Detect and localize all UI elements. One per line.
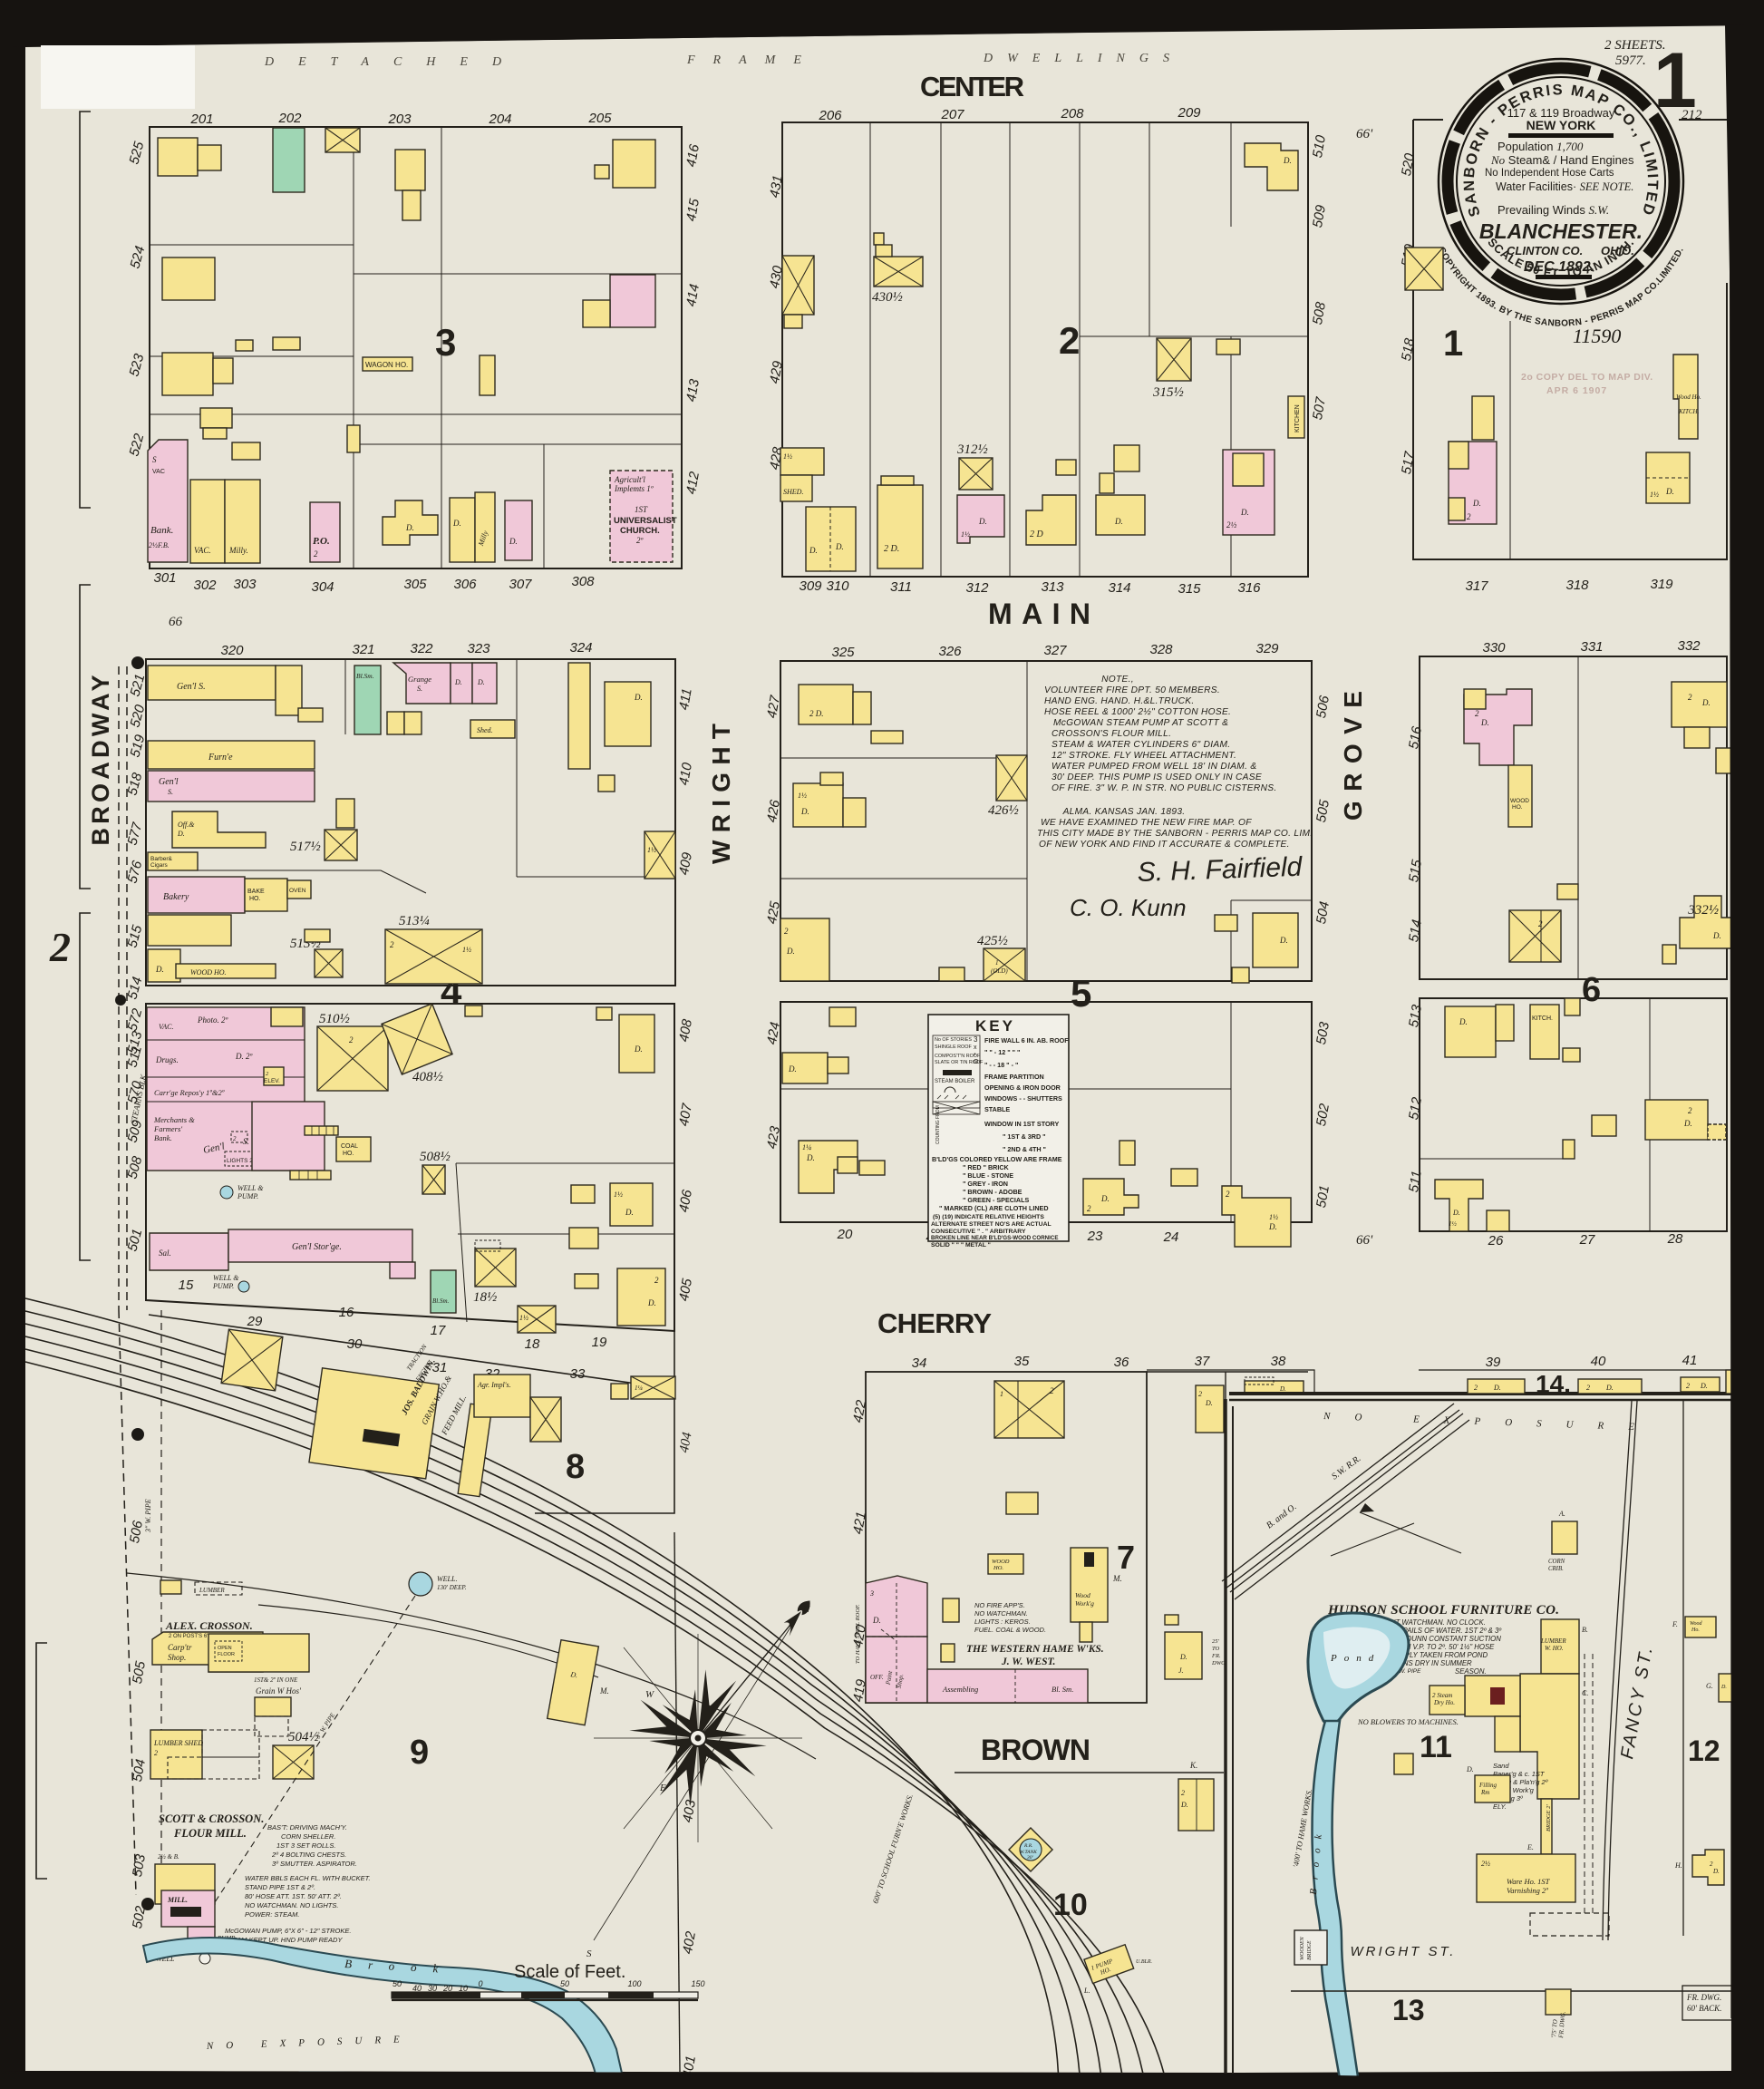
svg-text:NO WATCHMAN. NO LIGHTS.: NO WATCHMAN. NO LIGHTS. (245, 1901, 338, 1909)
svg-text:E: E (659, 1783, 666, 1793)
svg-text:STABLE: STABLE (984, 1105, 1010, 1113)
svg-text:D.: D. (1480, 718, 1489, 727)
svg-text:332: 332 (1677, 638, 1701, 654)
svg-text:2: 2 (1226, 1190, 1230, 1199)
svg-text:P.O.: P.O. (313, 536, 330, 547)
svg-text:80' HOSE ATT. 1ST. 50' ATT. 2º: 80' HOSE ATT. 1ST. 50' ATT. 2º. (245, 1892, 342, 1900)
svg-text:BRIDGE 2': BRIDGE 2' (1546, 1804, 1552, 1832)
svg-text:2: 2 (1087, 1204, 1091, 1213)
svg-text:Dry Ho.: Dry Ho. (1433, 1699, 1455, 1706)
svg-text:Off.&: Off.& (178, 821, 195, 829)
svg-text:311: 311 (890, 579, 912, 595)
svg-text:2: 2 (154, 1749, 158, 1757)
svg-text:D.: D. (155, 965, 164, 974)
svg-text:1: 1 (995, 959, 999, 967)
svg-text:D.: D. (806, 1153, 815, 1162)
svg-text:KEY: KEY (975, 1017, 1015, 1035)
svg-text:426½: 426½ (988, 803, 1019, 818)
svg-text:3: 3 (869, 1589, 874, 1598)
svg-text:308: 308 (571, 574, 595, 589)
svg-text:303: 303 (233, 577, 257, 592)
svg-text:FR. DWG.: FR. DWG. (1686, 1993, 1721, 2002)
svg-text:40: 40 (1591, 1354, 1606, 1369)
svg-text:ALMA. KANSAS JAN. 1893.: ALMA. KANSAS JAN. 1893. (1062, 807, 1186, 817)
svg-text:34: 34 (912, 1355, 927, 1371)
svg-text:1ST& 2º IN ONE: 1ST& 2º IN ONE (254, 1676, 298, 1684)
svg-text:Bl. Sm.: Bl. Sm. (1052, 1685, 1073, 1694)
svg-text:1: 1 (1000, 1390, 1003, 1398)
svg-text:430½: 430½ (872, 290, 903, 305)
svg-text:W. HO.: W. HO. (1545, 1645, 1564, 1652)
svg-text:" RED " BRICK: " RED " BRICK (963, 1163, 1010, 1171)
svg-text:POWER: STEAM.: POWER: STEAM. (245, 1910, 299, 1919)
svg-text:McGOWAN STEAM PUMP AT SCOTT &: McGOWAN STEAM PUMP AT SCOTT & (1053, 718, 1228, 728)
svg-text:x: x (974, 1044, 977, 1051)
svg-text:66': 66' (1356, 1233, 1373, 1248)
svg-text:2½F.B.: 2½F.B. (149, 541, 170, 549)
svg-text:FIRE WALL 6 IN. AB. ROOF: FIRE WALL 6 IN. AB. ROOF (984, 1036, 1069, 1044)
svg-text:S: S (152, 455, 157, 464)
svg-text:2½ & B.: 2½ & B. (158, 1853, 179, 1861)
svg-text:328: 328 (1149, 642, 1173, 657)
svg-text:60' BACK.: 60' BACK. (1687, 2004, 1721, 2013)
svg-text:327: 327 (1043, 643, 1067, 658)
svg-text:6: 6 (1582, 971, 1601, 1009)
svg-text:BROWN: BROWN (981, 1734, 1097, 1766)
svg-text:" GREEN - SPECIALS: " GREEN - SPECIALS (963, 1196, 1030, 1204)
svg-text:201: 201 (189, 112, 213, 127)
svg-text:3º SMUTTER. ASPIRATOR.: 3º SMUTTER. ASPIRATOR. (272, 1860, 357, 1868)
svg-text:2: 2 (314, 549, 318, 559)
svg-text:WE HAVE EXAMINED THE NEW FIRE: WE HAVE EXAMINED THE NEW FIRE MAP. OF (1041, 818, 1252, 828)
svg-text:(5) (19) INDICATE RELATIVE HEI: (5) (19) INDICATE RELATIVE HEIGHTS (933, 1214, 1044, 1220)
svg-text:1½: 1½ (519, 1314, 528, 1322)
svg-text:5977.: 5977. (1615, 53, 1646, 68)
svg-text:17: 17 (431, 1323, 446, 1338)
svg-text:1½: 1½ (1650, 491, 1659, 499)
svg-text:D.: D. (452, 519, 461, 528)
svg-text:326: 326 (938, 644, 962, 659)
svg-text:28: 28 (1667, 1231, 1683, 1247)
svg-text:FRAME: FRAME (686, 53, 819, 67)
svg-text:302: 302 (193, 578, 217, 593)
svg-text:D.: D. (1720, 1685, 1727, 1690)
svg-text:GROVE: GROVE (1339, 685, 1367, 821)
svg-text:Gen'l: Gen'l (159, 777, 179, 787)
svg-text:309: 309 (799, 578, 822, 594)
svg-text:" MARKED (CL) ARE CLOTH LINED: " MARKED (CL) ARE CLOTH LINED (939, 1204, 1049, 1212)
svg-text:COAL: COAL (341, 1143, 358, 1150)
svg-text:TO: TO (1212, 1646, 1219, 1652)
svg-text:CONSECUTIVE " . " ARBITRA: CONSECUTIVE " . " ARBITRARY (931, 1229, 1026, 1235)
svg-text:W: W (645, 1689, 654, 1700)
svg-text:B'LD'GS COLORED YELLOW ARE FRA: B'LD'GS COLORED YELLOW ARE FRAME (932, 1155, 1062, 1163)
svg-text:OF NEW YORK AND FIND IT ACCURA: OF NEW YORK AND FIND IT ACCURATE & COMPL… (1039, 840, 1290, 850)
svg-text:2: 2 (1688, 693, 1692, 702)
svg-text:WINDOW IN 1ST STORY: WINDOW IN 1ST STORY (984, 1120, 1059, 1128)
svg-text:HO.: HO. (343, 1151, 354, 1157)
svg-text:E.: E. (1527, 1843, 1534, 1851)
svg-text:30' DEEP. THIS PUMP IS USED ON: 30' DEEP. THIS PUMP IS USED ONLY IN CASE (1052, 772, 1262, 782)
svg-text:310: 310 (826, 578, 849, 594)
svg-text:M.: M. (599, 1686, 609, 1695)
svg-text:208: 208 (1060, 106, 1084, 121)
svg-text:13: 13 (1392, 1994, 1425, 2026)
svg-text:D.: D. (477, 678, 485, 686)
svg-text:1½: 1½ (783, 452, 792, 461)
svg-text:U.BLR.: U.BLR. (1136, 1959, 1152, 1965)
svg-text:Photo. 2º: Photo. 2º (197, 1015, 228, 1025)
svg-text:314: 314 (1108, 580, 1130, 596)
svg-text:202: 202 (277, 111, 302, 126)
svg-text:11: 11 (1420, 1730, 1452, 1764)
svg-text:LIGHTS : KEROS.: LIGHTS : KEROS. (974, 1618, 1031, 1626)
svg-text:*: * (974, 1053, 976, 1059)
svg-text:Scale of Feet.: Scale of Feet. (514, 1962, 625, 1982)
svg-text:35: 35 (1014, 1354, 1030, 1369)
svg-text:Prevailing Winds S.W.: Prevailing Winds S.W. (1497, 203, 1609, 217)
svg-text:204: 204 (488, 112, 511, 127)
svg-text:1¼: 1¼ (635, 1385, 644, 1392)
svg-text:SHED.: SHED. (783, 488, 803, 496)
svg-text:41: 41 (1682, 1353, 1698, 1368)
svg-text:D.: D. (1712, 1868, 1720, 1875)
svg-text:36: 36 (1114, 1355, 1129, 1370)
svg-text:2: 2 (349, 1035, 354, 1044)
svg-text:Drugs.: Drugs. (155, 1055, 179, 1064)
svg-text:2 D: 2 D (1030, 530, 1044, 539)
svg-text:2: 2 (233, 1135, 237, 1142)
svg-text:2: 2 (1198, 1390, 1202, 1398)
svg-text:S.: S. (168, 788, 173, 796)
svg-text:Carp'tr: Carp'tr (168, 1643, 192, 1652)
svg-text:H.: H. (1674, 1861, 1682, 1870)
svg-text:Gen'l S.: Gen'l S. (177, 682, 206, 692)
svg-text:1: 1 (1443, 324, 1463, 364)
svg-text:BROKEN LINE NEAR B'LD'GS-WOOD: BROKEN LINE NEAR B'LD'GS-WOOD CORNICE (931, 1235, 1058, 1241)
svg-text:F.: F. (1672, 1620, 1678, 1628)
svg-text:KITCH.: KITCH. (1532, 1015, 1553, 1022)
svg-text:3" W. PIPE: 3" W. PIPE (144, 1499, 152, 1533)
svg-text:SHINGLE ROOF: SHINGLE ROOF (935, 1044, 972, 1050)
svg-text:D.: D. (405, 523, 414, 532)
svg-text:WELL &: WELL & (213, 1274, 239, 1282)
svg-text:D.: D. (1179, 1653, 1187, 1661)
svg-text:D.: D. (1466, 1765, 1474, 1773)
svg-text:WOODEN: WOODEN (1300, 1936, 1305, 1960)
svg-text:Furn'e: Furn'e (208, 753, 233, 763)
svg-text:FUEL. COAL & WOOD.: FUEL. COAL & WOOD. (974, 1626, 1046, 1634)
svg-text:CLINTON CO.: CLINTON CO. (1507, 244, 1583, 257)
svg-text:513¼: 513¼ (399, 914, 430, 928)
svg-text:329: 329 (1255, 641, 1279, 656)
svg-text:D.: D. (509, 537, 518, 546)
svg-text:FLOOR: FLOOR (218, 1652, 235, 1657)
svg-text:VOLUNTEER FIRE DPT. 50 MEMBERS: VOLUNTEER FIRE DPT. 50 MEMBERS. (1044, 685, 1220, 695)
svg-text:BRIDGE: BRIDGE (1307, 1940, 1313, 1960)
svg-text:2o COPY DEL TO MAP DIV.: 2o COPY DEL TO MAP DIV. (1521, 372, 1653, 383)
svg-text:1ST 3 SET ROLLS.: 1ST 3 SET ROLLS. (276, 1841, 335, 1850)
svg-text:NEW YORK: NEW YORK (1527, 118, 1596, 132)
svg-text:2 D.: 2 D. (884, 544, 899, 554)
svg-text:1½: 1½ (462, 946, 471, 954)
svg-text:KITCH.: KITCH. (1678, 408, 1700, 415)
svg-text:301: 301 (153, 570, 176, 586)
svg-text:THIS CITY MADE BY THE SANBORN: THIS CITY MADE BY THE SANBORN - PERRIS M… (1037, 829, 1313, 839)
svg-text:ALEX. CROSSON.: ALEX. CROSSON. (165, 1619, 253, 1632)
svg-text:331: 331 (1580, 639, 1603, 655)
svg-text:8: 8 (566, 1448, 585, 1486)
svg-text:Milly.: Milly. (228, 546, 248, 555)
svg-text:BAS'T: DRIVING MACH'Y.: BAS'T: DRIVING MACH'Y. (267, 1823, 347, 1832)
svg-text:Wood: Wood (1690, 1621, 1702, 1627)
svg-text:19: 19 (592, 1335, 607, 1350)
svg-text:408½: 408½ (412, 1070, 443, 1084)
svg-text:OPEN: OPEN (218, 1646, 232, 1651)
svg-text:20: 20 (837, 1227, 853, 1242)
svg-text:D.: D. (835, 542, 844, 551)
svg-text:2: 2 (1586, 1384, 1590, 1392)
svg-text:Work'g: Work'g (1075, 1599, 1094, 1608)
svg-text:39: 39 (1486, 1355, 1501, 1370)
svg-text:D.: D. (1683, 1119, 1692, 1128)
svg-text:1½: 1½ (647, 846, 656, 854)
svg-text:150: 150 (691, 1979, 704, 1988)
svg-text:14.: 14. (1536, 1370, 1571, 1398)
svg-text:203: 203 (387, 112, 412, 127)
svg-text:206: 206 (818, 108, 842, 123)
svg-text:Ware Ho. 1ST: Ware Ho. 1ST (1507, 1877, 1551, 1886)
svg-text:0: 0 (478, 1979, 482, 1988)
svg-text:D.: D. (647, 1298, 656, 1307)
svg-text:D.: D. (1268, 1222, 1277, 1231)
svg-text:2º: 2º (636, 536, 644, 545)
svg-text:N: N (802, 1604, 810, 1615)
svg-text:D.: D. (786, 947, 795, 956)
svg-text:Implemts 1º: Implemts 1º (614, 484, 654, 493)
svg-text:100: 100 (627, 1979, 641, 1988)
svg-text:B.: B. (1582, 1626, 1588, 1634)
svg-text:Farmers': Farmers' (153, 1124, 182, 1133)
svg-text:SEASON.: SEASON. (1455, 1667, 1487, 1676)
svg-text:" - - 18 " - ": " - - 18 " - " (984, 1061, 1018, 1069)
svg-text:FR.: FR. (1211, 1653, 1221, 1659)
svg-text:2: 2 (1710, 1861, 1713, 1868)
svg-text:2: 2 (1474, 1384, 1478, 1392)
svg-text:D.: D. (1452, 1209, 1460, 1217)
svg-text:11590: 11590 (1573, 325, 1621, 347)
svg-text:CORN SHELLER.: CORN SHELLER. (281, 1832, 335, 1841)
svg-text:HO.: HO. (993, 1565, 1003, 1571)
svg-text:1½: 1½ (1449, 1220, 1458, 1228)
svg-text:ELY.: ELY. (1493, 1802, 1507, 1811)
svg-text:Cigars: Cigars (150, 862, 169, 869)
svg-text:18: 18 (525, 1336, 540, 1352)
svg-text:OPENING & IRON DOOR: OPENING & IRON DOOR (984, 1083, 1061, 1092)
svg-text:" BROWN - ADOBE: " BROWN - ADOBE (963, 1188, 1023, 1196)
svg-text:WINDOWS - - SHUTTERS: WINDOWS - - SHUTTERS (984, 1094, 1062, 1103)
svg-text:D.: D. (1240, 508, 1249, 517)
svg-text:J. W. WEST.: J. W. WEST. (1001, 1657, 1055, 1667)
svg-text:OVEN: OVEN (289, 888, 306, 894)
svg-text:PUMP.: PUMP. (212, 1282, 234, 1290)
svg-text:OF FIRE. 3" W. P. IN STR. NO P: OF FIRE. 3" W. P. IN STR. NO PUBLIC CIST… (1052, 783, 1276, 793)
svg-text:D.: D. (177, 830, 185, 838)
svg-text:STEAM BOILER: STEAM BOILER (935, 1079, 975, 1084)
svg-text:HO.: HO. (249, 896, 261, 902)
svg-text:HAND ENG. HAND. H.&L.TRUCK.: HAND ENG. HAND. H.&L.TRUCK. (1044, 696, 1194, 706)
svg-text:5: 5 (1071, 972, 1091, 1015)
svg-text:315½: 315½ (1152, 385, 1184, 400)
svg-text:1½: 1½ (961, 530, 970, 539)
svg-text:Assembling: Assembling (942, 1685, 978, 1694)
svg-text:Barber&: Barber& (150, 856, 173, 862)
svg-text:DEC.1892.: DEC.1892. (1524, 259, 1594, 275)
svg-text:2: 2 (1475, 709, 1479, 718)
svg-text:D.: D. (1493, 1384, 1501, 1392)
svg-text:30: 30 (347, 1336, 363, 1352)
svg-text:LUMBER: LUMBER (199, 1587, 225, 1594)
svg-text:305: 305 (403, 577, 427, 592)
svg-text:D.: D. (1283, 156, 1292, 165)
svg-text:VAC.: VAC. (159, 1023, 174, 1031)
svg-text:NO WATCHMAN.: NO WATCHMAN. (974, 1609, 1028, 1618)
svg-text:S.: S. (417, 685, 422, 693)
svg-text:38: 38 (1271, 1354, 1286, 1369)
svg-text:508½: 508½ (420, 1150, 451, 1164)
svg-text:CHERRY: CHERRY (877, 1307, 998, 1339)
svg-text:D.: D. (1605, 1384, 1614, 1392)
svg-text:Carr'ge Repos'y 1º&2º: Carr'ge Repos'y 1º&2º (154, 1088, 225, 1097)
svg-text:18½: 18½ (473, 1290, 497, 1305)
svg-text:D.: D. (1701, 698, 1711, 707)
svg-text:SCOTT & CROSSON.: SCOTT & CROSSON. (159, 1812, 264, 1825)
svg-text:D.: D. (454, 678, 462, 686)
svg-text:425½: 425½ (977, 934, 1008, 948)
svg-text:S: S (586, 1948, 592, 1959)
svg-text:2 Steam: 2 Steam (1432, 1692, 1452, 1699)
svg-text:Shop.: Shop. (168, 1653, 186, 1662)
svg-text:VAC: VAC (152, 469, 165, 475)
svg-text:322: 322 (410, 641, 433, 656)
svg-text:WRIGHT ST.: WRIGHT ST. (1351, 1944, 1457, 1959)
svg-text:50: 50 (560, 1979, 569, 1988)
svg-text:D.: D. (1472, 499, 1481, 508)
svg-text:" BLUE - STONE: " BLUE - STONE (963, 1171, 1013, 1180)
svg-text:S.: S. (243, 1137, 249, 1146)
svg-text:2º 4 BOLTING CHESTS.: 2º 4 BOLTING CHESTS. (271, 1851, 346, 1859)
svg-text:" 2ND & 4TH ": " 2ND & 4TH " (1003, 1145, 1046, 1153)
svg-text:2: 2 (1688, 1106, 1692, 1115)
svg-text:L.: L. (1083, 1987, 1090, 1995)
svg-text:Shed.: Shed. (477, 726, 493, 734)
svg-text:D.: D. (634, 1044, 643, 1054)
svg-text:TO HAVE STEEL ROOF.: TO HAVE STEEL ROOF. (855, 1604, 861, 1664)
svg-text:Wood: Wood (1075, 1591, 1090, 1599)
svg-text:3: 3 (974, 1035, 978, 1044)
svg-text:STAND PIPE 1ST & 2º.: STAND PIPE 1ST & 2º. (245, 1883, 315, 1891)
svg-text:C. O. Kunn: C. O. Kunn (1070, 894, 1187, 921)
svg-text:BLANCHESTER.: BLANCHESTER. (1479, 219, 1643, 243)
svg-text:12" STROKE. FLY WHEEL ATTACHME: 12" STROKE. FLY WHEEL ATTACHMENT. (1052, 751, 1236, 761)
svg-text:2½: 2½ (1226, 520, 1237, 530)
svg-text:Sand: Sand (1493, 1762, 1509, 1770)
svg-text:Grain W Hos': Grain W Hos' (256, 1686, 302, 1695)
svg-text:209: 209 (1177, 105, 1201, 121)
svg-text:2: 2 (654, 1276, 659, 1285)
svg-text:VAC.: VAC. (194, 546, 211, 555)
svg-text:332½: 332½ (1687, 903, 1719, 918)
svg-text:2: 2 (49, 924, 71, 970)
svg-text:Wood Ho.: Wood Ho. (1676, 394, 1701, 401)
svg-text:OFF.: OFF. (870, 1674, 884, 1681)
svg-text:COUNTING FROM: COUNTING FROM (935, 1105, 941, 1144)
svg-text:304: 304 (311, 579, 334, 595)
svg-text:FLOUR MILL.: FLOUR MILL. (173, 1827, 247, 1840)
svg-text:330: 330 (1482, 640, 1506, 656)
svg-text:STEAM & WATER CYLINDERS 6" DIA: STEAM & WATER CYLINDERS 6" DIAM. (1052, 740, 1230, 750)
svg-text:Population 1,700: Population 1,700 (1497, 140, 1584, 153)
svg-text:D.: D. (1665, 487, 1674, 496)
svg-text:7: 7 (1117, 1539, 1135, 1576)
svg-text:2: 2 (1059, 319, 1080, 362)
svg-text:D.: D. (1114, 517, 1123, 526)
svg-text:2 D.: 2 D. (809, 709, 824, 718)
svg-text:MILL.: MILL. (167, 1896, 188, 1904)
svg-text:WELL.: WELL. (437, 1575, 457, 1583)
svg-text:NO BLOWERS TO MACHINES.: NO BLOWERS TO MACHINES. (1357, 1717, 1459, 1726)
svg-text:2: 2 (1050, 1386, 1054, 1395)
svg-text:2: 2 (784, 927, 789, 936)
svg-text:" 1ST & 3RD ": " 1ST & 3RD " (1003, 1132, 1046, 1141)
svg-text:2: 2 (390, 940, 394, 949)
svg-text:D.: D. (634, 693, 643, 702)
svg-text:66: 66 (169, 615, 183, 629)
svg-text:D.: D. (1712, 931, 1721, 940)
svg-text:THE WESTERN HAME W'KS.: THE WESTERN HAME W'KS. (966, 1644, 1104, 1655)
svg-text:WRIGHT: WRIGHT (707, 717, 735, 864)
svg-text:37: 37 (1195, 1354, 1210, 1369)
svg-text:26: 26 (1488, 1233, 1504, 1249)
svg-text:" " - 12 " " ": " " - 12 " " " (984, 1048, 1020, 1056)
svg-text:D.: D. (1205, 1399, 1213, 1407)
svg-text:D.: D. (1279, 936, 1288, 945)
svg-text:1½: 1½ (798, 792, 807, 800)
svg-text:D.: D. (800, 807, 809, 816)
svg-text:J.: J. (1178, 1666, 1184, 1675)
svg-text:2: 2 (1538, 919, 1543, 928)
svg-text:12: 12 (1688, 1734, 1720, 1767)
svg-text:307: 307 (509, 577, 532, 592)
svg-text:Filling: Filling (1478, 1782, 1497, 1789)
svg-text:Pond: Pond (1330, 1653, 1381, 1664)
svg-text:D.: D. (569, 1670, 578, 1679)
svg-text:CHURCH.: CHURCH. (620, 526, 660, 536)
svg-text:SOLID " " " METAL ": SOLID " " " METAL " (931, 1242, 991, 1249)
svg-text:C.: C. (1582, 1689, 1588, 1697)
svg-text:D.: D. (788, 1064, 797, 1074)
svg-text:WOOD: WOOD (992, 1559, 1010, 1565)
svg-text:29: 29 (247, 1314, 263, 1329)
svg-text:WOOD HO.: WOOD HO. (190, 968, 227, 976)
svg-text:2 ON POST'S 6': 2 ON POST'S 6' (169, 1634, 208, 1639)
svg-text:10: 10 (1053, 1888, 1088, 1922)
svg-text:2: 2 (1181, 1789, 1185, 1797)
svg-text:D.: D. (1459, 1017, 1468, 1026)
svg-text:DETACHED: DETACHED (264, 55, 526, 69)
svg-text:315: 315 (1178, 581, 1201, 597)
svg-text:323: 323 (467, 641, 490, 656)
